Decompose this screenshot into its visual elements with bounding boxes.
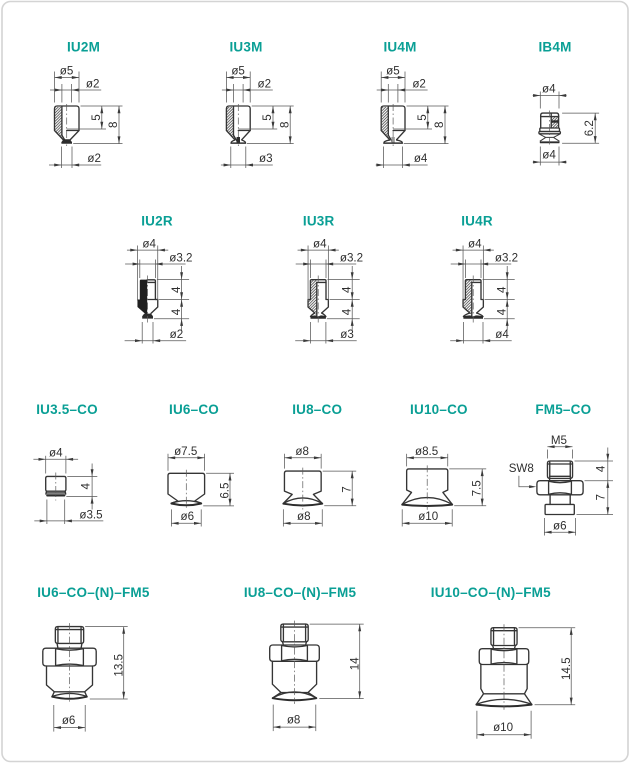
svg-text:ø6: ø6	[181, 510, 195, 523]
svg-text:IU10–CO–(N)–FM5: IU10–CO–(N)–FM5	[431, 585, 551, 600]
svg-text:6.5: 6.5	[218, 483, 231, 499]
svg-text:ø2: ø2	[258, 77, 272, 90]
svg-text:6.2: 6.2	[583, 120, 596, 136]
svg-text:7: 7	[594, 494, 607, 500]
svg-text:ø4: ø4	[495, 328, 509, 341]
svg-text:8: 8	[433, 122, 446, 128]
svg-text:ø4: ø4	[542, 149, 556, 162]
svg-text:IU6–CO: IU6–CO	[169, 402, 219, 417]
svg-text:4: 4	[496, 286, 509, 293]
svg-text:5: 5	[416, 114, 429, 120]
svg-text:ø3.5: ø3.5	[79, 508, 102, 521]
svg-text:14: 14	[349, 657, 362, 670]
svg-text:ø4: ø4	[468, 237, 482, 250]
svg-text:ø6: ø6	[553, 519, 567, 532]
svg-text:7.5: 7.5	[471, 480, 484, 496]
svg-text:IU3.5–CO: IU3.5–CO	[36, 402, 98, 417]
svg-text:ø2: ø2	[86, 77, 100, 90]
svg-text:IU8–CO–(N)–FM5: IU8–CO–(N)–FM5	[244, 585, 357, 600]
svg-text:SW8: SW8	[509, 462, 534, 475]
svg-text:ø4: ø4	[542, 83, 556, 96]
svg-text:ø2: ø2	[412, 77, 426, 90]
svg-text:ø7.5: ø7.5	[174, 445, 197, 458]
svg-text:ø5: ø5	[231, 65, 245, 78]
svg-text:ø5: ø5	[386, 65, 400, 78]
svg-text:4: 4	[79, 483, 92, 490]
svg-text:5: 5	[90, 114, 103, 120]
svg-text:4: 4	[594, 465, 607, 472]
svg-text:ø2: ø2	[170, 328, 184, 341]
svg-text:ø5: ø5	[60, 65, 74, 78]
svg-text:IU6–CO–(N)–FM5: IU6–CO–(N)–FM5	[37, 585, 150, 600]
svg-text:ø3.2: ø3.2	[495, 251, 518, 264]
svg-text:ø3: ø3	[259, 152, 273, 165]
svg-text:M5: M5	[551, 434, 567, 447]
svg-text:ø4: ø4	[414, 152, 428, 165]
svg-text:4: 4	[496, 308, 509, 315]
svg-text:5: 5	[261, 114, 274, 120]
svg-text:14.5: 14.5	[560, 657, 573, 680]
svg-text:4: 4	[341, 308, 354, 315]
svg-text:8: 8	[278, 122, 291, 128]
svg-text:4: 4	[170, 308, 183, 315]
svg-text:IU4M: IU4M	[383, 39, 416, 54]
svg-text:ø10: ø10	[418, 510, 438, 523]
svg-text:4: 4	[341, 286, 354, 293]
svg-text:8: 8	[107, 122, 120, 128]
svg-text:ø8: ø8	[287, 714, 301, 727]
svg-text:ø4: ø4	[142, 237, 156, 250]
svg-text:IU3M: IU3M	[229, 39, 262, 54]
svg-text:ø3.2: ø3.2	[169, 251, 192, 264]
svg-text:4: 4	[170, 286, 183, 293]
svg-text:7: 7	[341, 486, 354, 492]
svg-text:ø6: ø6	[62, 714, 76, 727]
svg-text:ø8: ø8	[297, 510, 311, 523]
svg-text:FM5–CO: FM5–CO	[535, 402, 591, 417]
svg-text:ø8.5: ø8.5	[415, 445, 438, 458]
svg-text:ø8: ø8	[295, 445, 309, 458]
svg-text:ø2: ø2	[87, 152, 101, 165]
svg-text:IB4M: IB4M	[538, 39, 571, 54]
svg-text:ø4: ø4	[49, 447, 63, 460]
svg-text:IU10–CO: IU10–CO	[410, 402, 468, 417]
svg-text:IU2R: IU2R	[141, 213, 173, 228]
svg-text:ø4: ø4	[313, 237, 327, 250]
svg-text:ø10: ø10	[493, 721, 513, 734]
svg-text:ø3.2: ø3.2	[340, 251, 363, 264]
svg-text:13.5: 13.5	[113, 654, 126, 677]
svg-text:ø3: ø3	[340, 328, 354, 341]
svg-text:IU8–CO: IU8–CO	[292, 402, 342, 417]
svg-text:IU4R: IU4R	[461, 213, 493, 228]
svg-text:IU3R: IU3R	[303, 213, 335, 228]
svg-text:IU2M: IU2M	[67, 39, 100, 54]
